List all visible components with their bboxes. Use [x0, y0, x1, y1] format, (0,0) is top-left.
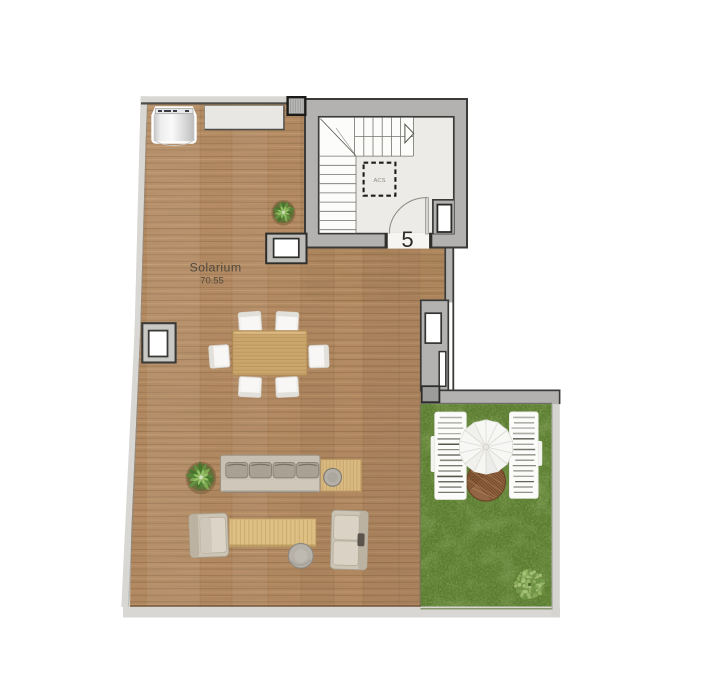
svg-text:70.55: 70.55	[200, 275, 223, 286]
svg-text:Solarium: Solarium	[189, 261, 241, 275]
svg-text:ACS: ACS	[374, 178, 386, 184]
svg-text:5: 5	[401, 227, 413, 252]
